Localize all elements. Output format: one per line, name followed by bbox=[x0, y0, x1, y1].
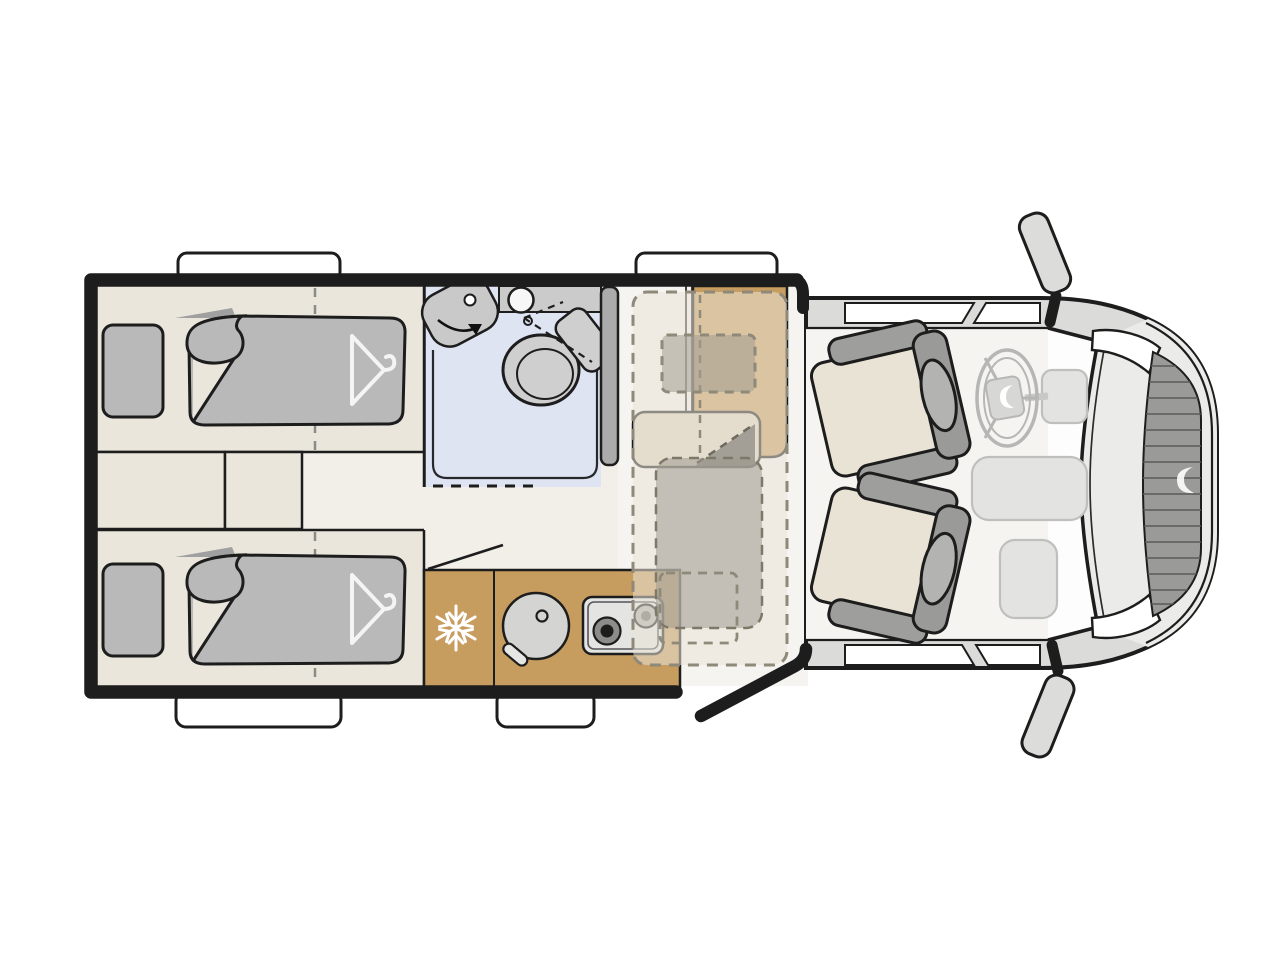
sink-drain bbox=[537, 611, 548, 622]
side-window-bottom-short bbox=[976, 645, 1040, 665]
grille bbox=[1143, 352, 1201, 616]
glovebox bbox=[1000, 540, 1057, 618]
storage-step-small bbox=[225, 452, 302, 529]
dinette bbox=[633, 286, 787, 665]
between-beds-floor bbox=[302, 452, 424, 530]
wardrobe-partition bbox=[601, 287, 618, 465]
cab-and-front bbox=[804, 209, 1217, 760]
storage-step-large bbox=[91, 452, 225, 529]
conversion-duvet-overlay bbox=[656, 458, 762, 628]
mirror-bottom-glass bbox=[1018, 671, 1077, 760]
mirror-top-arm bbox=[1050, 296, 1056, 322]
side-window-bottom-long bbox=[845, 645, 974, 665]
floorplan-canvas: Camper van floor plan - top view bbox=[0, 0, 1280, 960]
mirror-bottom-arm bbox=[1052, 645, 1058, 671]
camper-floorplan: Camper van floor plan - top view bbox=[0, 0, 1280, 960]
basin bbox=[509, 288, 534, 313]
pillow bbox=[103, 564, 163, 656]
pillow bbox=[103, 325, 163, 417]
dash-cluster bbox=[1042, 370, 1087, 423]
wall-end-hook bbox=[796, 280, 803, 308]
conversion-pillow-outline bbox=[662, 335, 755, 392]
side-window-top-long bbox=[845, 303, 974, 323]
burner-large-center bbox=[601, 625, 614, 638]
bathroom bbox=[415, 270, 618, 487]
dash-console bbox=[972, 457, 1087, 520]
washbasin-tap bbox=[465, 295, 476, 306]
side-window-top-short bbox=[974, 303, 1040, 323]
mirror-top-glass bbox=[1016, 209, 1075, 296]
